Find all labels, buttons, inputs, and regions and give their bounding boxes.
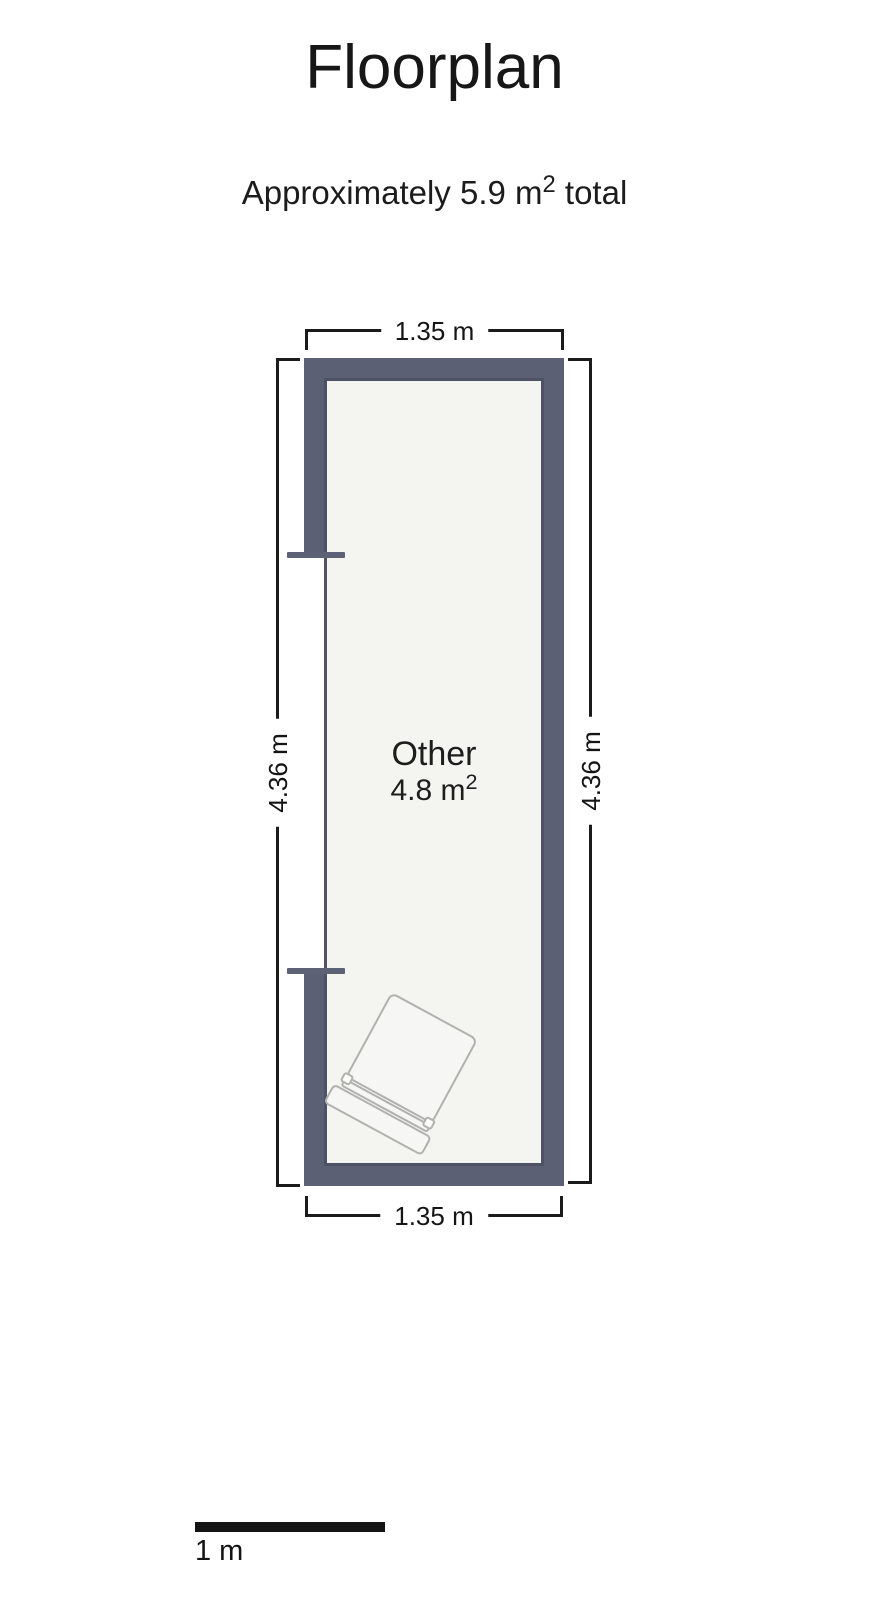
scale-bar: [195, 1522, 385, 1532]
dimension-tick: [305, 329, 308, 350]
dimension-tick: [276, 1184, 300, 1187]
subtitle-text: Approximately 5.9 m: [242, 174, 543, 211]
door-jamb-bottom: [287, 968, 345, 974]
dimension-tick: [305, 1196, 308, 1217]
scale-bar-label: 1 m: [195, 1536, 243, 1568]
floorplan-page: Floorplan Approximately 5.9 m2 total Oth…: [0, 0, 869, 1600]
dimension-label-left: 4.36 m: [261, 719, 295, 827]
dimension-label-right: 4.36 m: [574, 717, 608, 825]
dimension-top: 1.35 m: [305, 329, 564, 332]
room-area-value: 4.8 m: [390, 774, 465, 807]
dimension-tick: [568, 1181, 592, 1184]
dimension-tick: [568, 358, 592, 361]
room-area-label: 4.8 m2: [304, 773, 564, 809]
dimension-tick: [276, 358, 300, 361]
room-area-superscript: 2: [466, 769, 478, 794]
dimension-tick: [561, 329, 564, 350]
subtitle-suffix: total: [556, 174, 628, 211]
door-jamb-top: [287, 552, 345, 558]
room-label: Other: [304, 736, 564, 773]
dimension-left: 4.36 m: [276, 358, 279, 1187]
page-title: Floorplan: [0, 34, 869, 102]
dimension-tick: [560, 1196, 563, 1217]
dimension-label-bottom: 1.35 m: [380, 1199, 488, 1233]
subtitle-superscript: 2: [543, 171, 556, 198]
dimension-bottom: 1.35 m: [305, 1214, 563, 1217]
dimension-right: 4.36 m: [589, 358, 592, 1184]
page-subtitle: Approximately 5.9 m2 total: [0, 174, 869, 212]
dimension-label-top: 1.35 m: [381, 314, 489, 348]
